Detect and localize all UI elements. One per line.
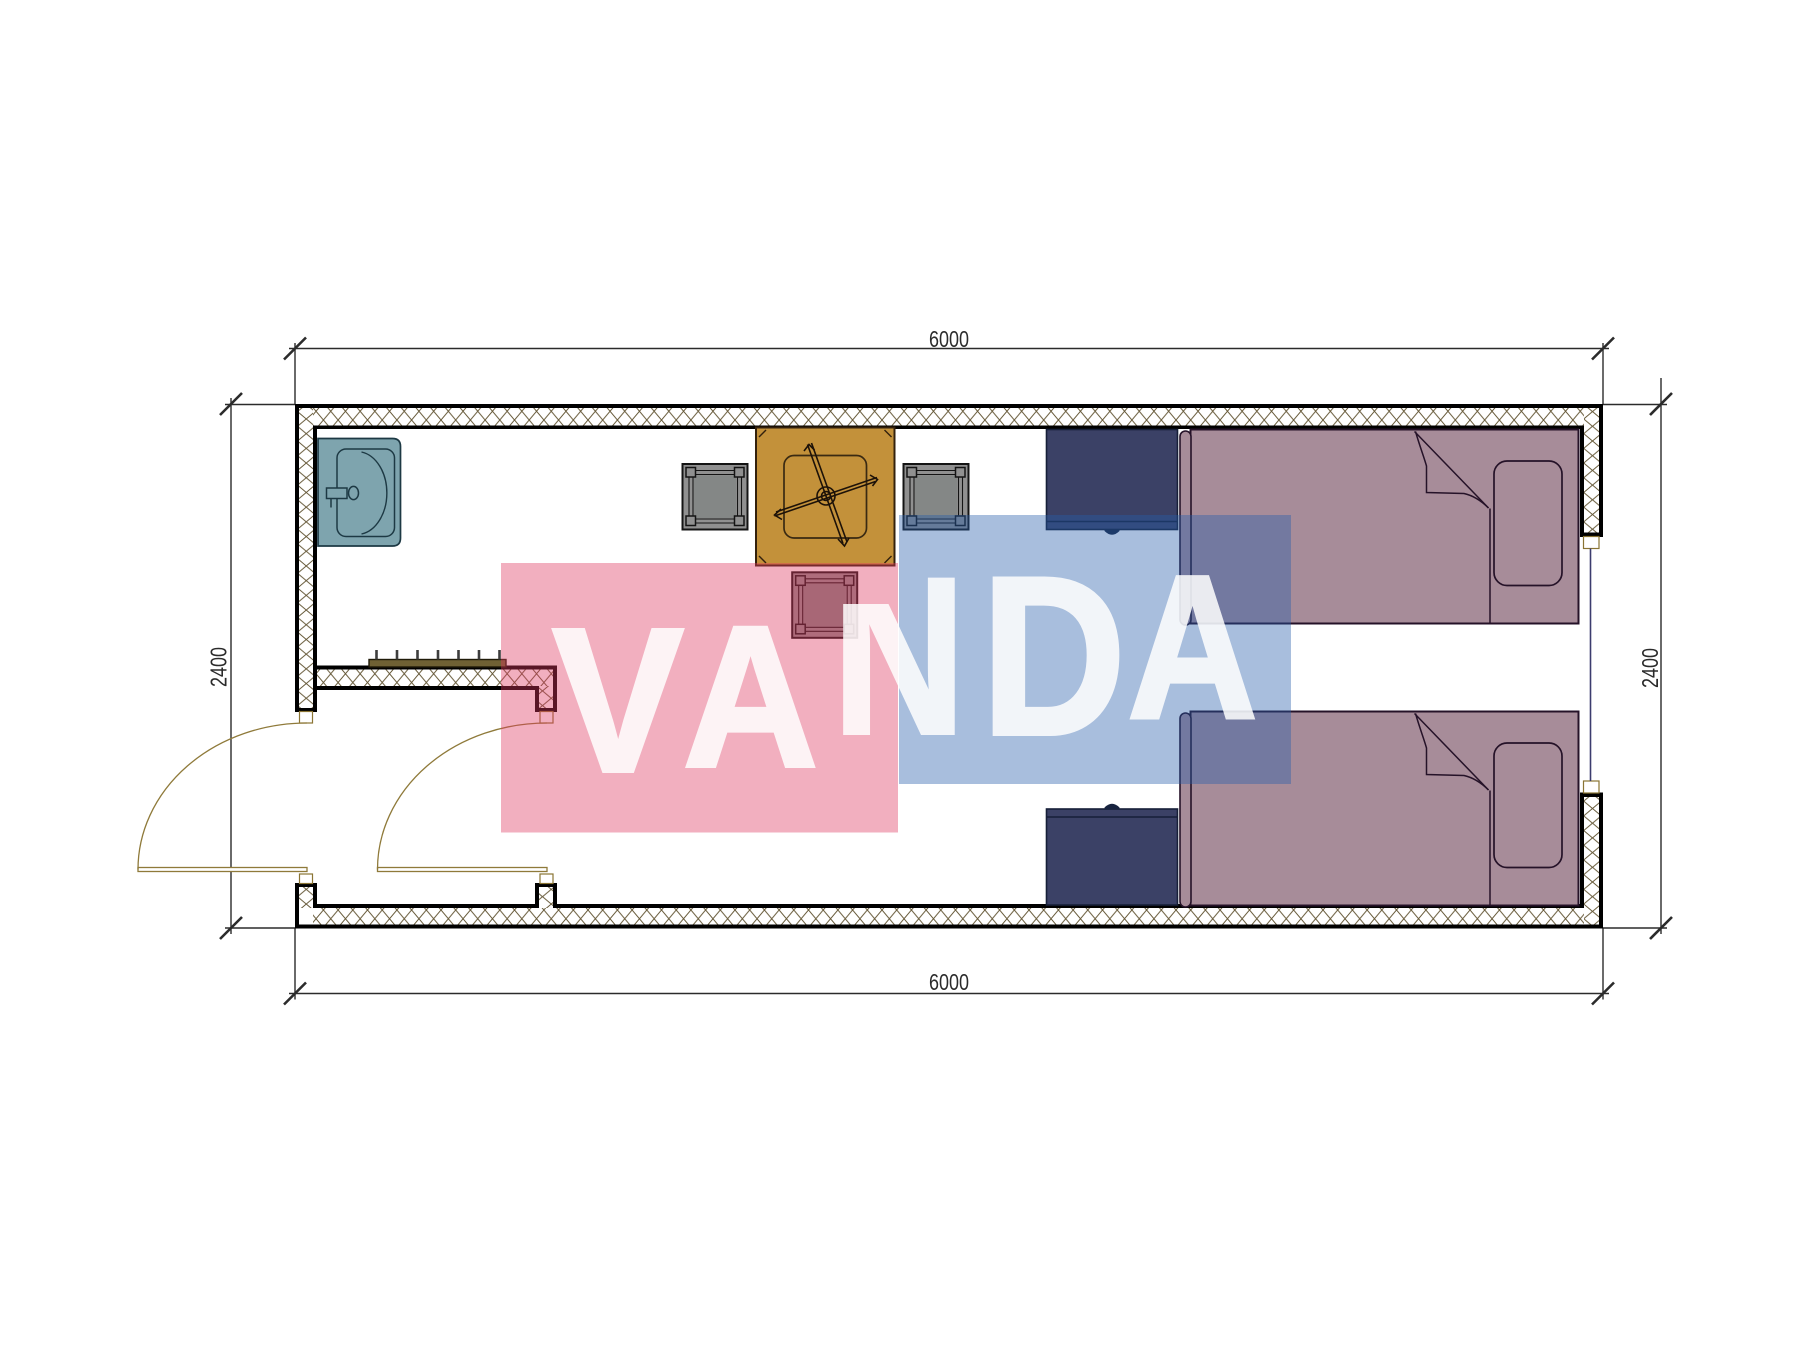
svg-text:A: A [1128, 534, 1258, 762]
svg-text:2400: 2400 [206, 647, 232, 687]
svg-text:6000: 6000 [929, 326, 969, 352]
svg-text:V: V [553, 586, 684, 815]
svg-text:6000: 6000 [929, 969, 969, 995]
svg-text:2400: 2400 [1637, 648, 1663, 688]
svg-text:A: A [683, 584, 818, 809]
svg-text:D: D [981, 529, 1126, 782]
